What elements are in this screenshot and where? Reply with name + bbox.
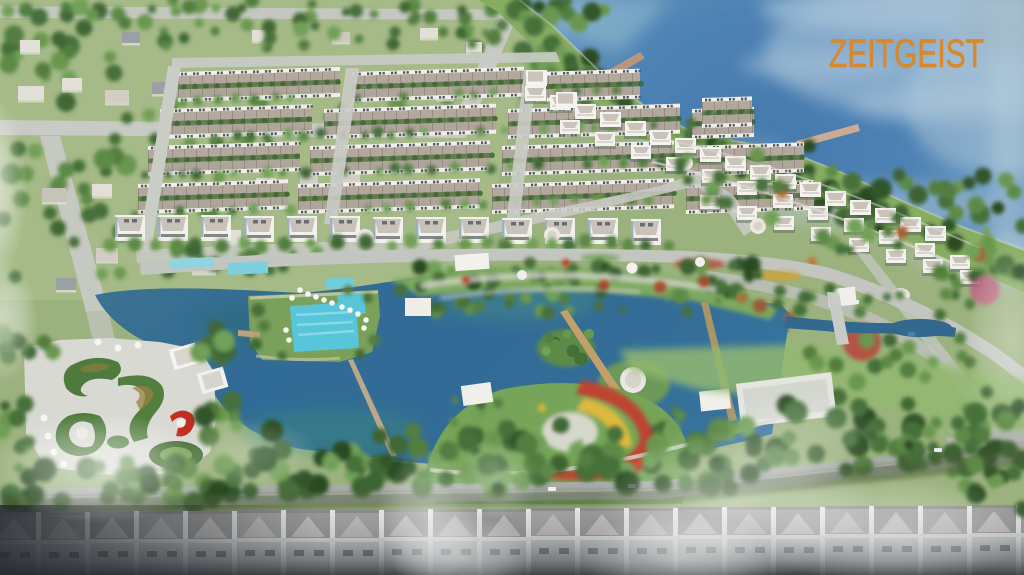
svg-text:ZEITGEIST: ZEITGEIST (829, 32, 984, 76)
